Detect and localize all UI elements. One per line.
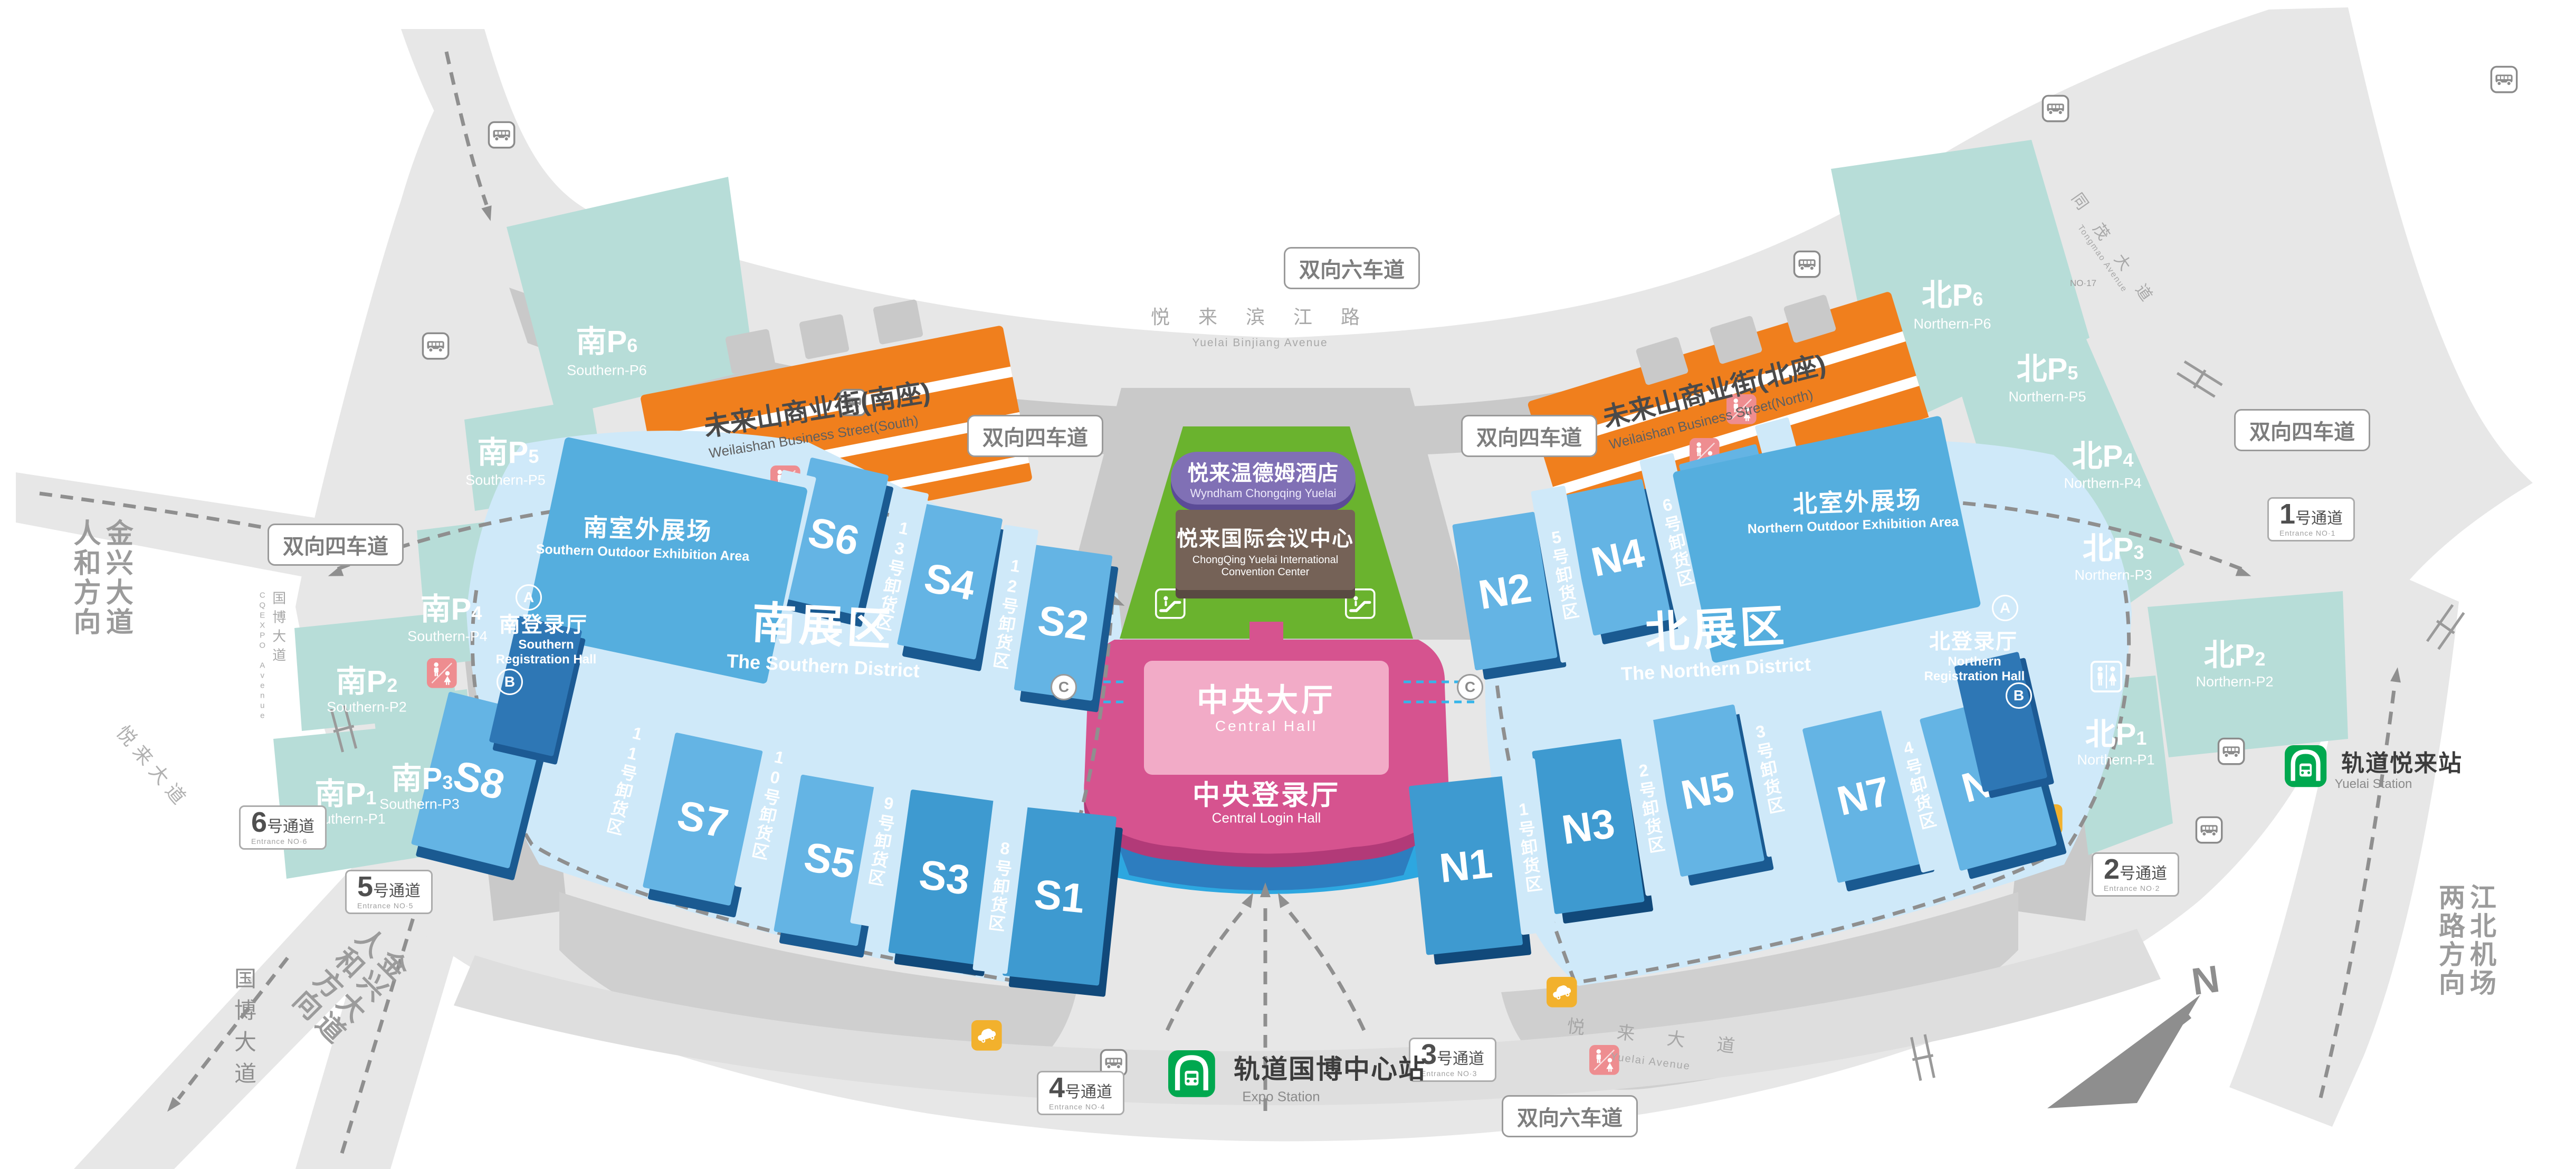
hotel-banner: 悦来温德姆酒店 Wyndham Chongqing Yuelai [1171,452,1356,505]
lane-sign-4-center-south: 双向四车道 [967,415,1103,457]
parking-north-p1-en: Northern-P1 [2077,752,2154,768]
parking-north-p2-en: Northern-P2 [2196,674,2273,690]
parking-north-p1: 北P1 [2085,719,2147,750]
lane-sign-4-right: 双向四车道 [2234,409,2370,451]
expo-station-label-en: Expo Station [1242,1089,1320,1105]
hotel-label: 悦来温德姆酒店 [1188,456,1339,487]
convention-center-building: 悦来国际会议中心 ChongQing Yuelai International … [1176,510,1355,590]
compass-arrow [2047,995,2200,1108]
gate-no17-label: NO·17 [2070,278,2096,289]
gate-a-south: A [516,584,542,611]
parking-north-p3: 北P3 [2083,534,2144,564]
parking-south-p2: 南P2 [336,667,398,697]
yuelai-station-label-en: Yuelai Station [2335,777,2412,792]
entrance-4-sign: 4号通道Entrance NO·4 [1037,1071,1124,1115]
compass-north-label: N [2189,957,2222,1004]
lane-sign-6-bottom: 双向六车道 [1502,1095,1638,1137]
central-hall-shape [1084,622,1448,894]
parking-north-p5: 北P5 [2017,354,2078,385]
registration-north-label: 北登录厅 [1929,624,2018,655]
registration-north-label-en1: Northern [1948,655,2001,669]
outdoor-north-label: 北室外展场 [1792,481,1922,520]
guobo-avenue-label-small: 国博大道 CQEXPO Avenue [256,591,289,721]
parking-south-p5-en: Southern-P5 [465,472,546,489]
registration-south-label: 南登录厅 [499,607,588,638]
gate-b-south: B [497,669,523,695]
central-hall-label-en: Central Hall [1215,718,1318,735]
parking-south-p4-en: Southern-P4 [407,629,488,645]
parking-south-p2-en: Southern-P2 [327,699,407,716]
parking-south-p3-en: Southern-P3 [379,796,460,813]
entrance-5-sign: 5号通道Entrance NO·5 [345,870,433,914]
convention-label: 悦来国际会议中心 [1177,521,1354,552]
parking-south-p4: 南P4 [421,594,482,625]
entrance-1-sign: 1号通道Entrance NO·1 [2267,497,2355,541]
entrance-6-sign: 6号通道Entrance NO·6 [239,805,327,850]
gate-b-north: B [2006,682,2032,709]
binjiang-road-label-en: Yuelai Binjiang Avenue [1192,337,1328,349]
guobo-avenue-label-big: 国博大道 [228,967,260,1094]
lane-sign-6-top: 双向六车道 [1284,247,1420,289]
corridor-c-right: C [1457,674,1483,700]
parking-north-p5-en: Northern-P5 [2008,389,2086,405]
expo-station-label: 轨道国博中心站 [1234,1048,1426,1086]
outdoor-south-label: 南室外展场 [583,508,713,548]
parking-north-p4-en: Northern-P4 [2064,476,2141,492]
parking-north-p6: 北P6 [1922,280,1983,311]
district-north-label: 北展区 [1643,591,1789,662]
convention-label-en2: Convention Center [1222,566,1310,578]
yuelai-station-icon [2285,745,2326,787]
central-hall-label: 中央大厅 [1197,675,1336,721]
parking-south-p6-en: Southern-P6 [567,363,647,379]
parking-south-p1: 南P1 [315,779,377,810]
binjiang-road-label: 悦 来 滨 江 路 [1151,302,1371,329]
registration-north-label-en2: Registration Hall [1924,670,2025,683]
lane-sign-4-center-north: 双向四车道 [1461,415,1597,457]
district-south-label: 南展区 [750,587,896,659]
corridor-c-left: C [1051,674,1077,700]
lane-sign-4-left: 双向四车道 [268,524,404,566]
parking-south-p5: 南P5 [478,438,539,468]
registration-south-label-en2: Registration Hall [496,653,597,667]
entrance-2-sign: 2号通道Entrance NO·2 [2092,852,2179,897]
expo-station-icon [1168,1050,1215,1097]
airport-direction: 江北机场 两路方向 [2434,883,2496,997]
hotel-label-en: Wyndham Chongqing Yuelai [1190,487,1336,500]
gate-a-north: A [1992,595,2018,621]
jinxing-direction-topleft: 金兴大道 人和方向 [68,519,133,637]
parking-south-p6: 南P6 [576,327,638,357]
expo-center-map: S6 S4 S2 S8 S7 S5 S3 S1 N2 N4 N6 N1 N3 N… [0,0,2576,1169]
registration-south-label-en1: Southern [518,638,574,652]
parking-north-p3-en: Northern-P3 [2074,567,2152,584]
central-login-label-en: Central Login Hall [1212,810,1321,826]
parking-north-p4: 北P4 [2072,441,2134,472]
central-login-label: 中央登录厅 [1192,773,1340,813]
parking-south-p3: 南P3 [392,764,453,794]
convention-label-en1: ChongQing Yuelai International [1192,554,1339,566]
parking-north-p6-en: Northern-P6 [1913,316,1991,332]
yuelai-station-label: 轨道悦来站 [2341,744,2463,778]
parking-north-p2: 北P2 [2204,640,2266,671]
